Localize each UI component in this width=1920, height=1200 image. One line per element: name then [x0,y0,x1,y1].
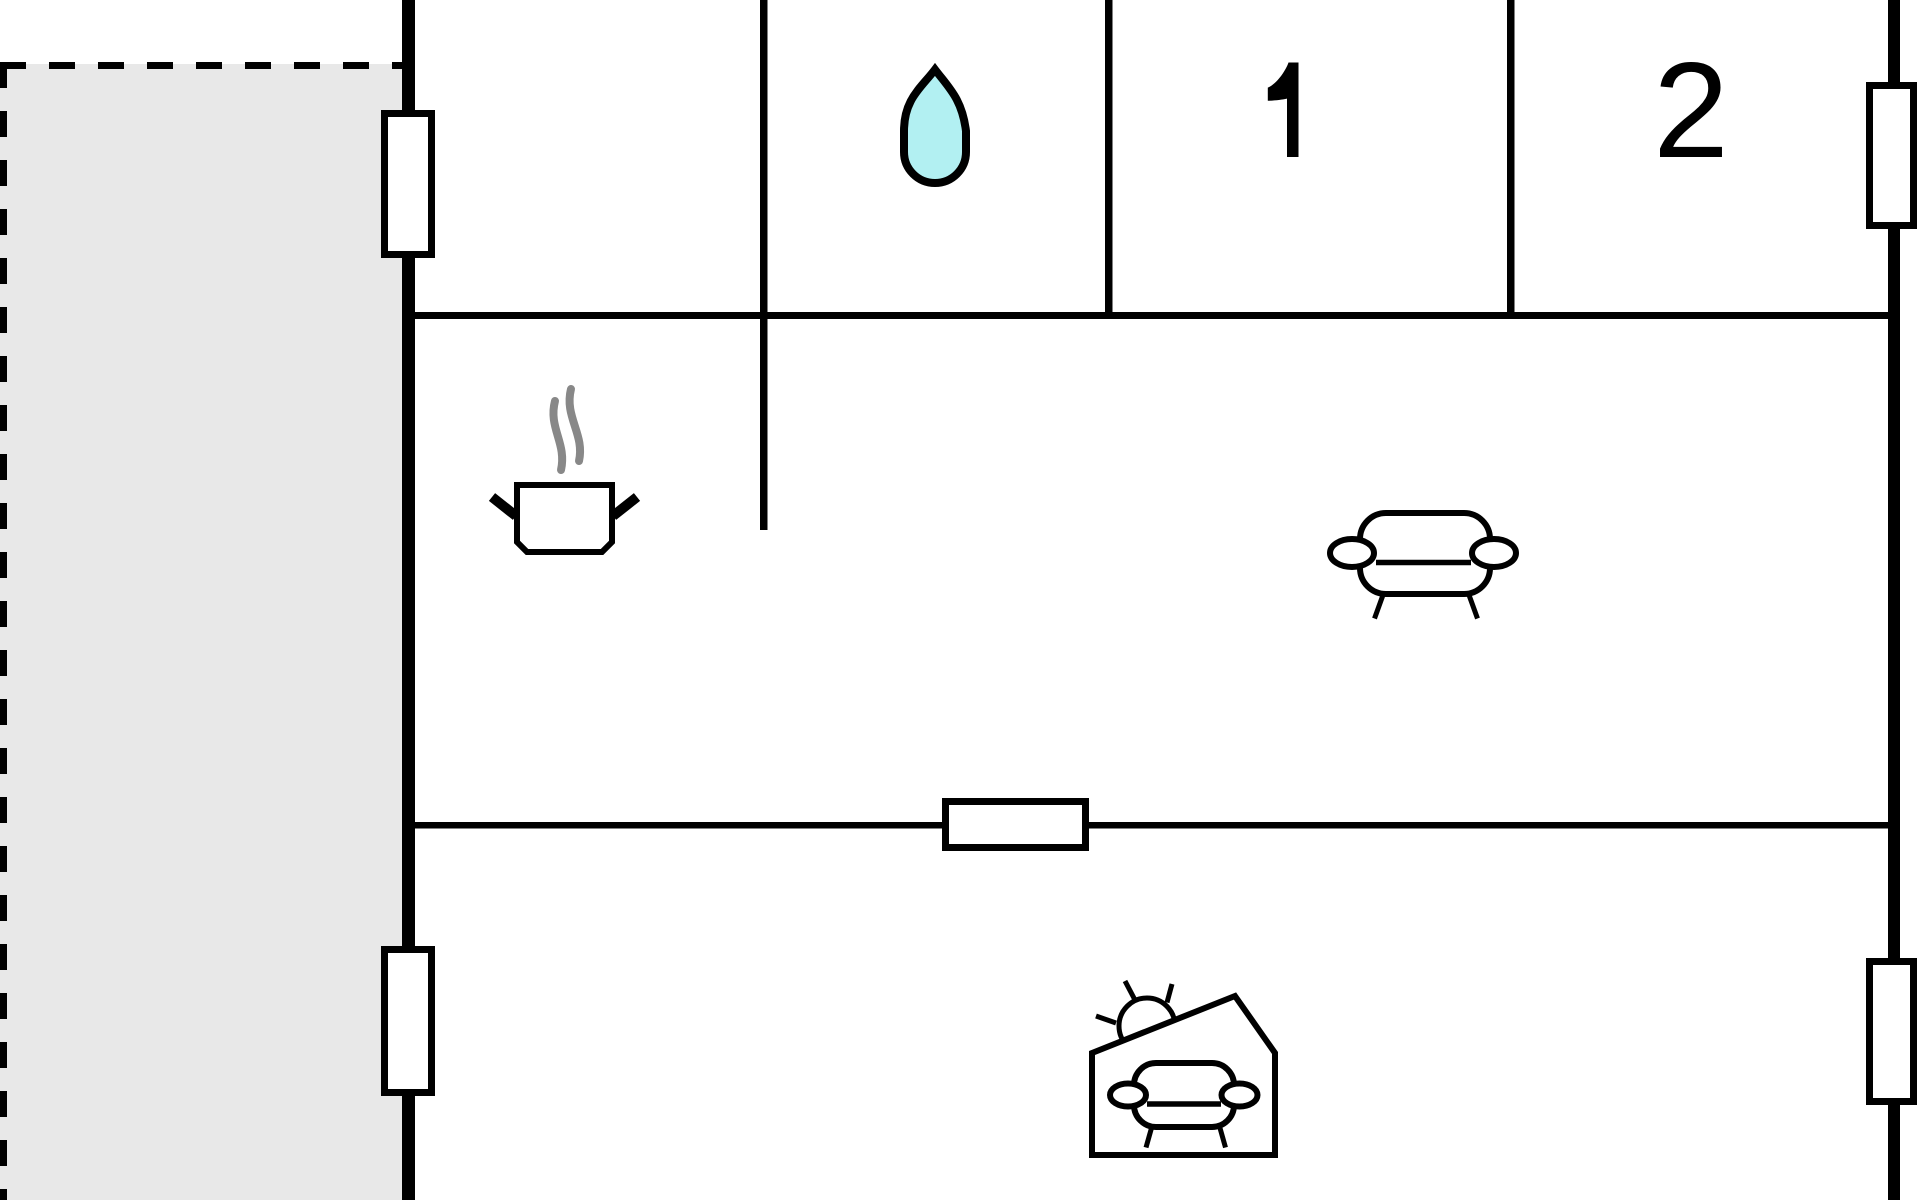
svg-text:2: 2 [1653,34,1729,186]
